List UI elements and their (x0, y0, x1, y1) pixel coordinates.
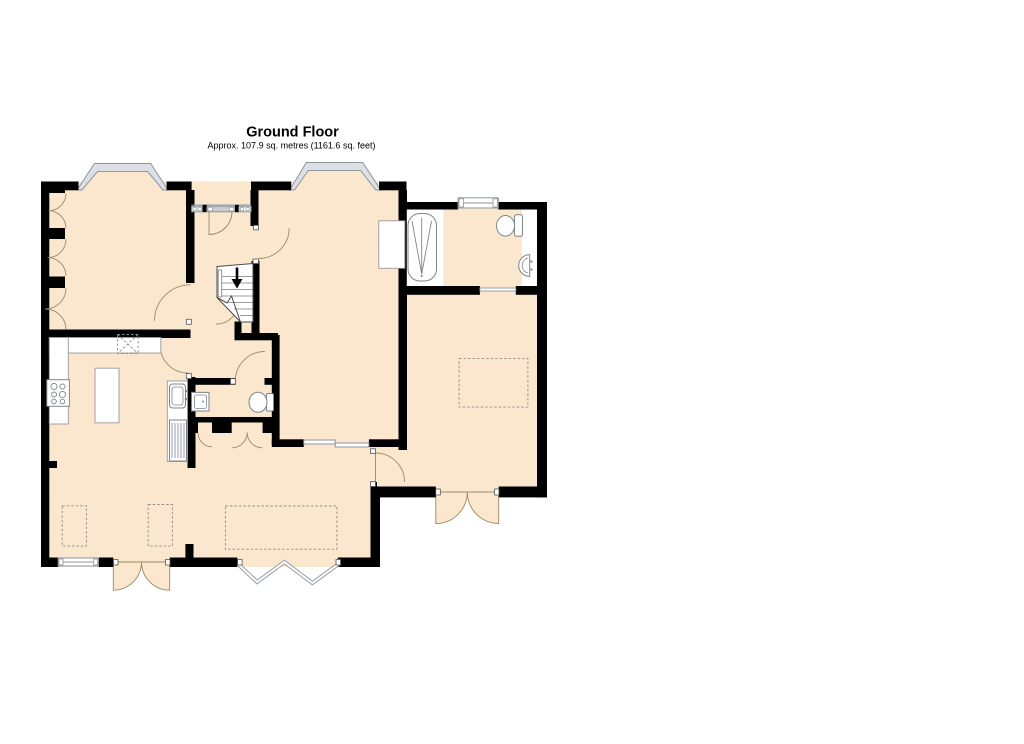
svg-text:Approx. 107.9 sq. metres (1161: Approx. 107.9 sq. metres (1161.6 sq. fee… (208, 141, 376, 151)
svg-text:Ground Floor: Ground Floor (246, 125, 339, 141)
